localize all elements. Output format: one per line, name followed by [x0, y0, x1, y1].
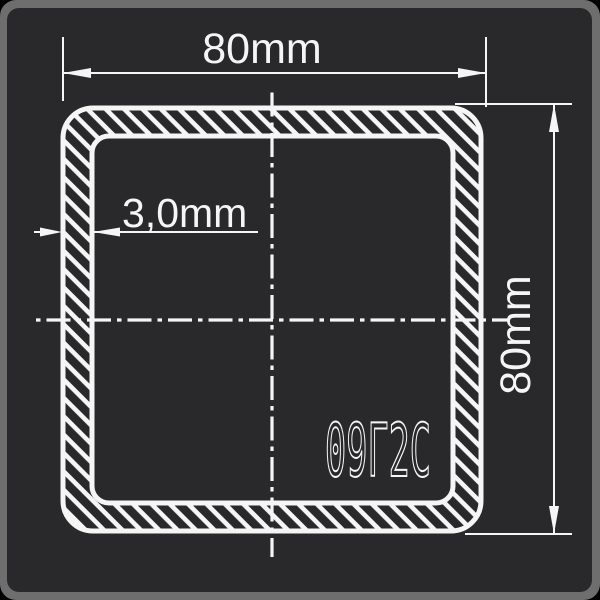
width-dimension-label: 80mm [202, 25, 321, 73]
height-dimension-label: 80mm [492, 275, 540, 394]
drawing-panel: 80mm 80mm 3,0mm 09Г2С [7, 8, 592, 592]
steel-grade-label: 09Г2С [325, 409, 431, 494]
height-arrow-up-icon [549, 104, 559, 132]
width-arrow-right-icon [458, 68, 486, 78]
tube-cross-section-drawing: 80mm 80mm 3,0mm 09Г2С [0, 0, 600, 600]
width-dimension: 80mm [63, 25, 486, 107]
thickness-arrow-left-icon [93, 228, 120, 237]
thickness-dimension-label: 3,0mm [122, 190, 247, 236]
height-arrow-down-icon [549, 506, 559, 534]
width-arrow-left-icon [63, 68, 91, 78]
thickness-arrow-right-icon [40, 228, 62, 237]
screenshot-canvas: 80mm 80mm 3,0mm 09Г2С [0, 0, 600, 600]
